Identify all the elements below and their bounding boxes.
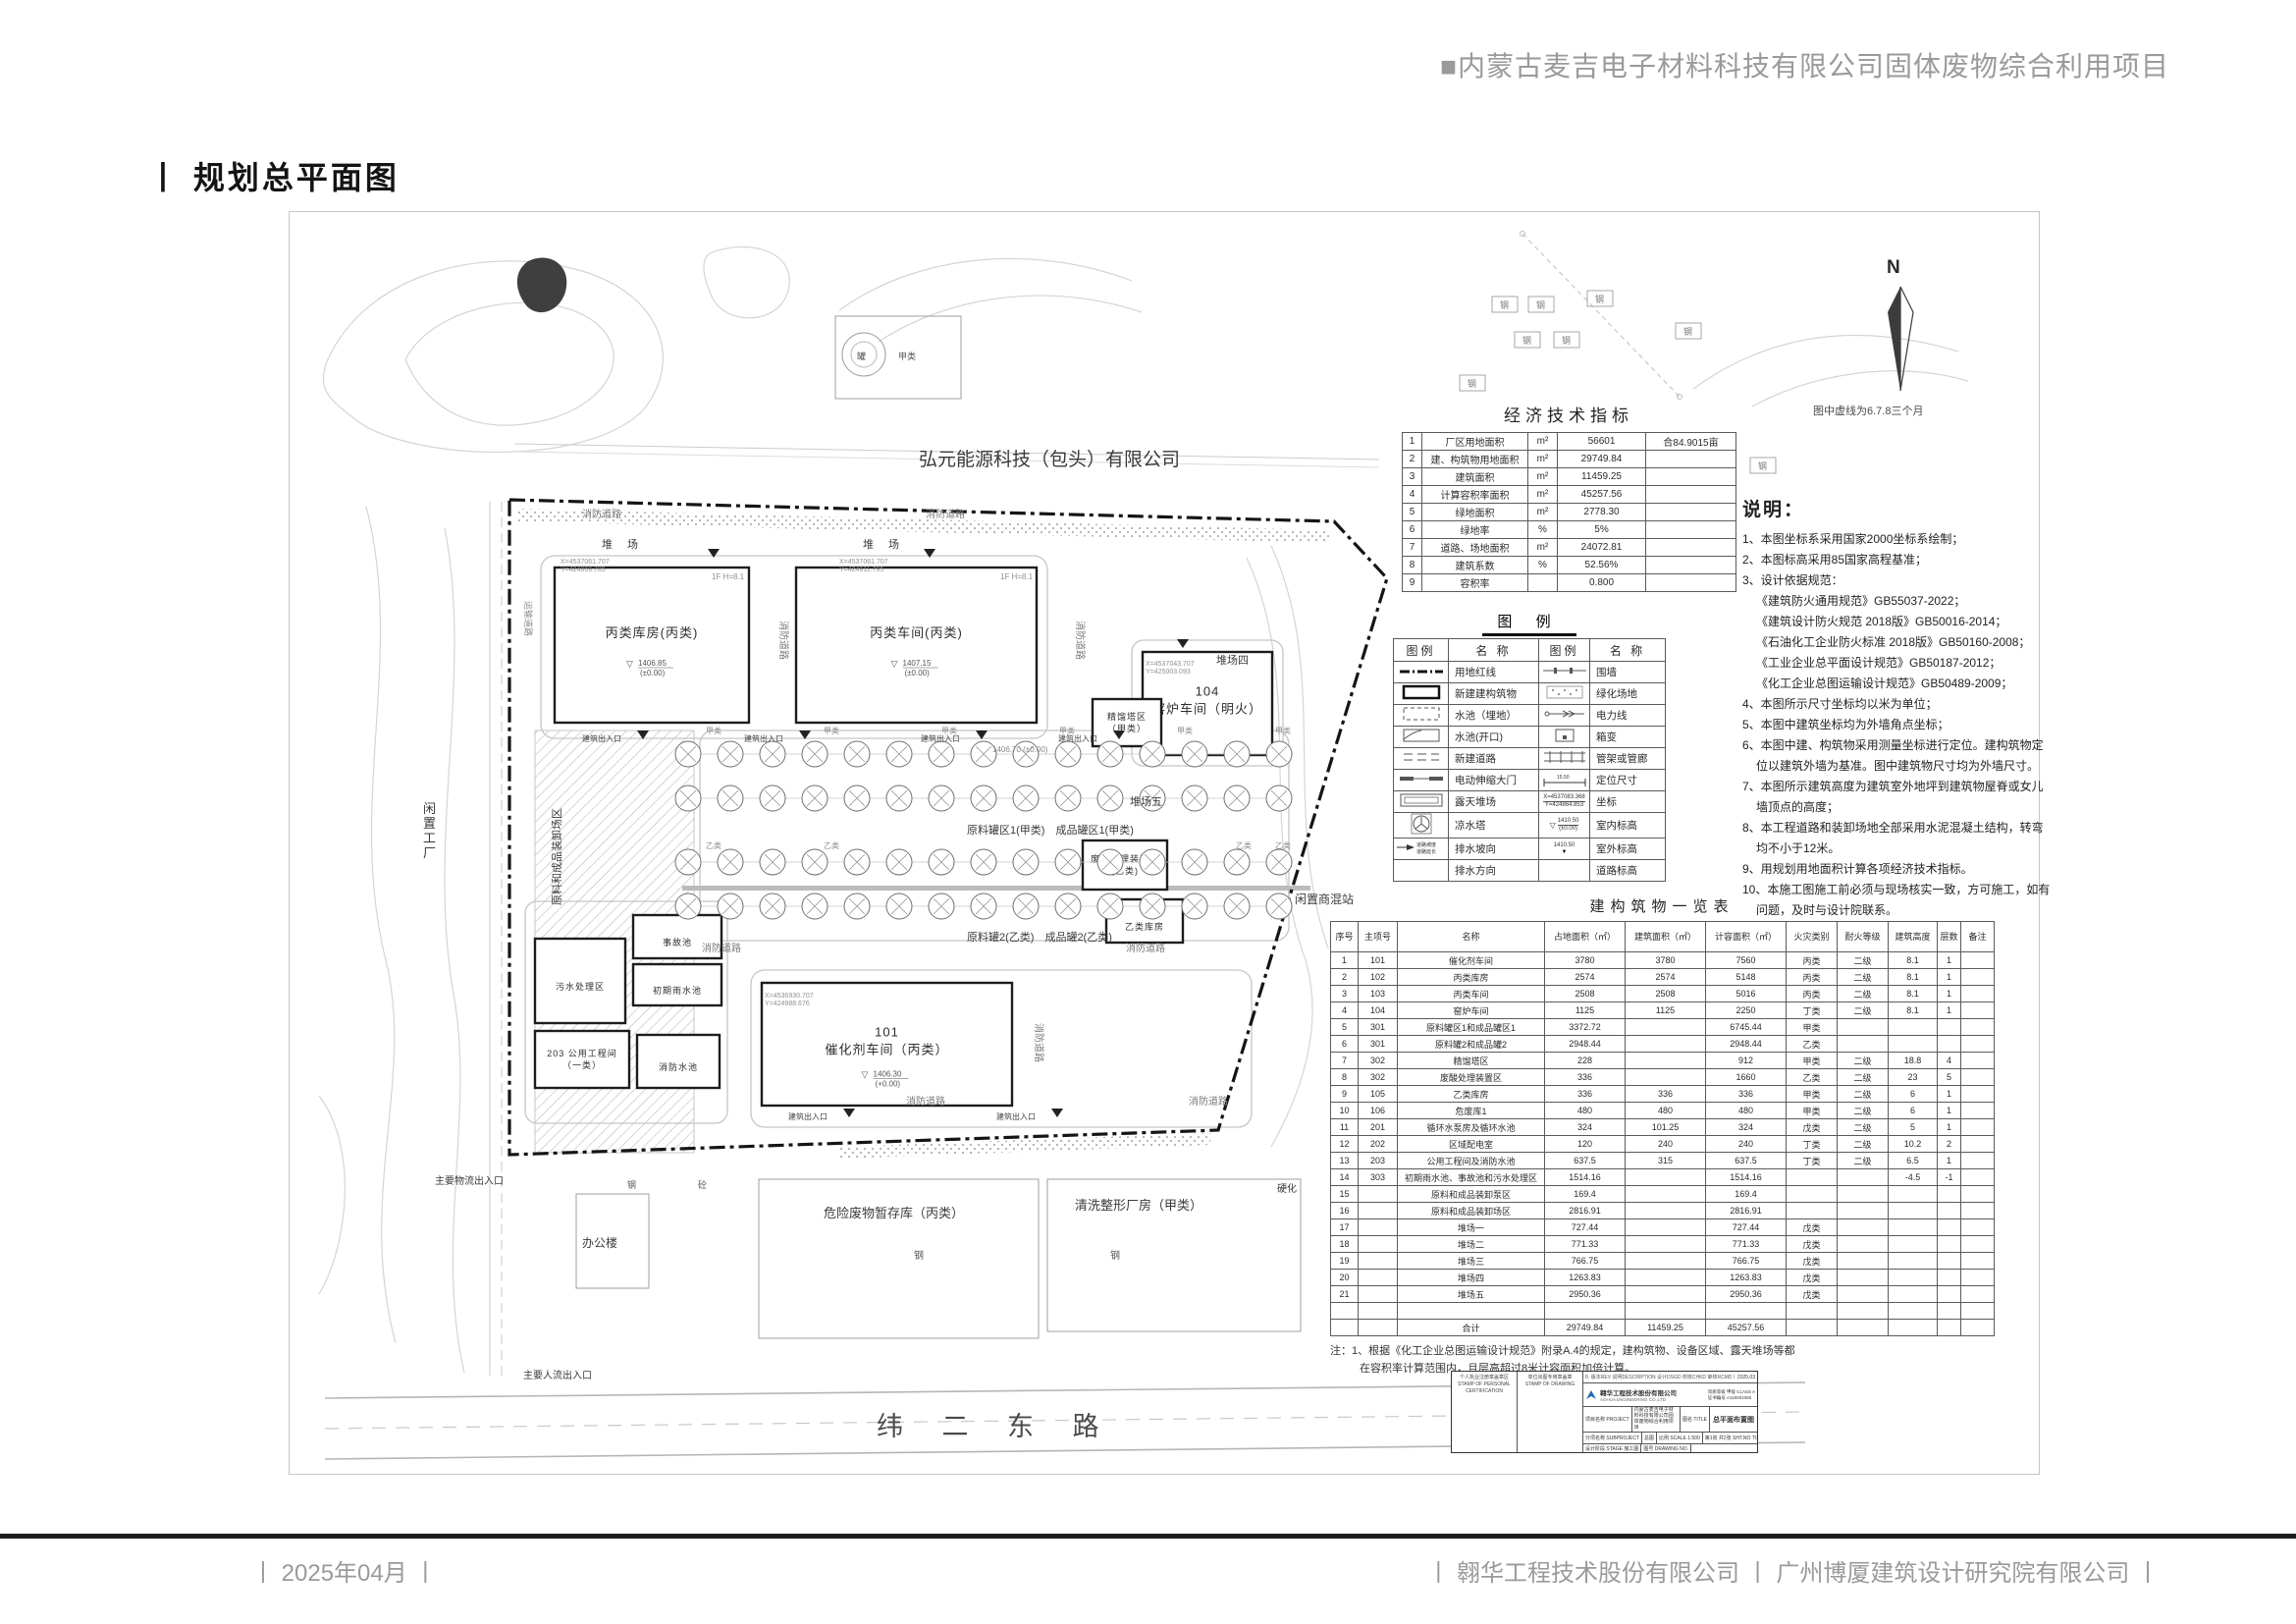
map-label: Y=425003.093 bbox=[1146, 669, 1191, 676]
economic-indicators-table: 1厂区用地面积m²56601合84.9015亩2建、构筑物用地面积m²29749… bbox=[1402, 432, 1736, 592]
table-cell: 乙类 bbox=[1787, 1036, 1838, 1053]
table-row: 15原料和成品装卸泵区169.4169.4 bbox=[1331, 1186, 1995, 1203]
map-label: 堆 场 bbox=[863, 537, 905, 551]
table-cell bbox=[1961, 1303, 1995, 1320]
table-cell bbox=[1528, 574, 1558, 592]
map-label: 消防道路 bbox=[926, 508, 965, 520]
table-cell bbox=[1938, 1320, 1961, 1336]
scale: 比例 SCALE 1:500 bbox=[1657, 1433, 1703, 1443]
table-cell: 丁类 bbox=[1787, 1153, 1838, 1169]
table-cell bbox=[1961, 1320, 1995, 1336]
table-cell: % bbox=[1528, 521, 1558, 539]
note-line: 《建筑设计防火规范 2018版》GB50016-2014； bbox=[1742, 612, 2037, 632]
note-line: 6、本图中建、构筑物采用测量坐标进行定位。建构筑物定 bbox=[1742, 735, 2037, 756]
table-cell: 堆场三 bbox=[1398, 1253, 1545, 1270]
legend-name: 定位尺寸 bbox=[1590, 770, 1666, 791]
table-cell bbox=[1889, 1320, 1938, 1336]
table-cell: 303 bbox=[1359, 1169, 1398, 1186]
table-cell bbox=[1646, 504, 1736, 521]
table-cell bbox=[1838, 1303, 1889, 1320]
table-cell bbox=[1961, 1270, 1995, 1286]
column-header: 名称 bbox=[1398, 922, 1545, 952]
table-cell: 8.1 bbox=[1889, 986, 1938, 1002]
table-cell bbox=[1359, 1270, 1398, 1286]
table-cell: 20 bbox=[1331, 1270, 1359, 1286]
table-cell bbox=[1938, 1303, 1961, 1320]
table-cell: 丙类库房 bbox=[1398, 969, 1545, 986]
north-caption: 图中虚线为6.7.8三个月 bbox=[1813, 403, 1923, 418]
tank-class-label: 甲类 bbox=[706, 726, 721, 735]
table-cell bbox=[1961, 1069, 1995, 1086]
greenery-strip-top bbox=[517, 509, 1330, 543]
titleblock-header-row: 版本REV 说明DESCRIPTION 设计DSGD 校核CHKD 审核RCMD… bbox=[1591, 1374, 1735, 1380]
table-cell: 2574 bbox=[1545, 969, 1626, 986]
titleblock: 个人执业注册章盖章区 STAMP OF PERSONAL CERTIFICATI… bbox=[1451, 1371, 1758, 1453]
table-cell bbox=[1646, 521, 1736, 539]
legend-name: 排水坡向 bbox=[1449, 839, 1539, 860]
entrance-label: 建筑出入口 bbox=[1058, 733, 1097, 743]
table-cell bbox=[1961, 1203, 1995, 1219]
elevation-datum: (±0.00) bbox=[905, 669, 931, 677]
table-cell: 2 bbox=[1403, 451, 1422, 468]
column-header: 耐火等级 bbox=[1838, 922, 1889, 952]
map-label: 砼 bbox=[698, 1179, 707, 1190]
table-cell bbox=[1359, 1253, 1398, 1270]
table-cell: 7560 bbox=[1706, 952, 1787, 969]
table-cell: 绿地面积 bbox=[1422, 504, 1528, 521]
table-row: 10106危废库1480480480甲类二级61 bbox=[1331, 1103, 1995, 1119]
building-label: 104 bbox=[1196, 684, 1220, 699]
table-cell bbox=[1961, 986, 1995, 1002]
map-label: 1F H=8.1 bbox=[712, 572, 745, 581]
table-cell: 戊类 bbox=[1787, 1236, 1838, 1253]
table-cell: 7 bbox=[1403, 539, 1422, 557]
table-cell: 8 bbox=[1403, 557, 1422, 574]
drawing-title-label: 图名 TITLE bbox=[1681, 1407, 1710, 1432]
table-cell: 二级 bbox=[1838, 1136, 1889, 1153]
table-cell: 废酸处理装置区 bbox=[1398, 1069, 1545, 1086]
revision-value: 0 bbox=[1585, 1375, 1588, 1380]
table-cell: 丁类 bbox=[1787, 1136, 1838, 1153]
steel-label: 钢 bbox=[1683, 326, 1692, 337]
table-cell bbox=[1961, 1136, 1995, 1153]
steel-label: 钢 bbox=[1595, 294, 1604, 304]
project-name: 内蒙古麦吉电子材料科技有限公司固体废物综合利用项目 bbox=[1632, 1407, 1681, 1432]
map-label: 消防道路 bbox=[1189, 1095, 1228, 1108]
table-cell bbox=[1838, 1203, 1889, 1219]
column-header: 计容面积（㎡） bbox=[1706, 922, 1787, 952]
table-cell bbox=[1838, 1219, 1889, 1236]
legend-symbol-outdoor: 1410.50▼ bbox=[1539, 839, 1590, 860]
company-logo-icon bbox=[1585, 1389, 1597, 1400]
map-label: 主要物流出入口 bbox=[435, 1174, 504, 1187]
map-label: 堆场四 bbox=[1216, 653, 1249, 667]
table-cell bbox=[1961, 1103, 1995, 1119]
entrance-label: 建筑出入口 bbox=[744, 733, 783, 743]
map-label: 罐 bbox=[857, 351, 866, 361]
table-cell: 3780 bbox=[1626, 952, 1706, 969]
table-cell: 初期雨水池、事故池和污水处理区 bbox=[1398, 1169, 1545, 1186]
note-line: 均不小于12米。 bbox=[1742, 839, 2037, 859]
table-cell: 302 bbox=[1359, 1069, 1398, 1086]
legend-row: 水池（埋地）电力线 bbox=[1394, 705, 1666, 727]
new-building bbox=[535, 1031, 629, 1088]
table-cell bbox=[1626, 1169, 1706, 1186]
table-cell: 堆场二 bbox=[1398, 1236, 1545, 1253]
table-cell: 2 bbox=[1938, 1136, 1961, 1153]
table-cell: 建筑面积 bbox=[1422, 468, 1528, 486]
entrance-label: 建筑出入口 bbox=[996, 1111, 1036, 1121]
table-cell: 4 bbox=[1938, 1053, 1961, 1069]
table-cell bbox=[1889, 1270, 1938, 1286]
table-row: 20堆场四1263.831263.83戊类 bbox=[1331, 1270, 1995, 1286]
table-cell: 建筑系数 bbox=[1422, 557, 1528, 574]
table-cell: 101.25 bbox=[1626, 1119, 1706, 1136]
table-cell: 危废库1 bbox=[1398, 1103, 1545, 1119]
table-cell bbox=[1961, 1086, 1995, 1103]
map-label: 主要人流出入口 bbox=[523, 1369, 592, 1381]
table-cell: 合84.9015亩 bbox=[1646, 433, 1736, 451]
table-cell: 203 bbox=[1359, 1153, 1398, 1169]
table-cell: 原料罐区1和成品罐区1 bbox=[1398, 1019, 1545, 1036]
table-cell bbox=[1838, 1253, 1889, 1270]
table-row: 1101催化剂车间378037807560丙类二级8.11 bbox=[1331, 952, 1995, 969]
note-line: 4、本图所示尺寸坐标均以米为单位； bbox=[1742, 694, 2037, 715]
table-cell: 堆场四 bbox=[1398, 1270, 1545, 1286]
table-cell: 戊类 bbox=[1787, 1270, 1838, 1286]
table-cell: 厂区用地面积 bbox=[1422, 433, 1528, 451]
table-cell bbox=[1961, 1019, 1995, 1036]
company-name: 翱华工程技术股份有限公司 AOHUA ENGINEERING CO.,LTD bbox=[1600, 1387, 1677, 1403]
map-label: Y=424988.676 bbox=[765, 1001, 810, 1007]
table-cell: 2250 bbox=[1706, 1002, 1787, 1019]
legend-row: 电动伸缩大门15.50定位尺寸 bbox=[1394, 770, 1666, 791]
svg-text:道路坡度: 道路坡度 bbox=[1416, 841, 1436, 848]
table-cell: 106 bbox=[1359, 1103, 1398, 1119]
table-cell: 1 bbox=[1938, 1086, 1961, 1103]
map-label: 原料罐2(乙类) 成品罐2(乙类) bbox=[967, 930, 1112, 944]
new-building bbox=[796, 568, 1037, 723]
footer-companies: 丨 翱华工程技术股份有限公司 丨 广州博厦建筑设计研究院有限公司 丨 bbox=[1426, 1553, 2160, 1588]
table-cell: 1 bbox=[1938, 969, 1961, 986]
building-label: （甲类） bbox=[1107, 723, 1147, 733]
table-cell: 甲类 bbox=[1787, 1103, 1838, 1119]
building-label: 初期雨水池 bbox=[653, 985, 702, 996]
table-cell: 324 bbox=[1545, 1119, 1626, 1136]
note-line: 1、本图坐标系采用国家2000坐标系绘制； bbox=[1742, 529, 2037, 550]
table-row: 4104窑炉车间112511252250丁类二级8.11 bbox=[1331, 1002, 1995, 1019]
table-cell bbox=[1838, 1186, 1889, 1203]
note-line: 《石油化工企业防火标准 2018版》GB50160-2008； bbox=[1742, 632, 2037, 653]
legend-name: 室内标高 bbox=[1590, 813, 1666, 839]
table-row: 8建筑系数%52.56% bbox=[1403, 557, 1736, 574]
table-cell: 2778.30 bbox=[1558, 504, 1646, 521]
table-cell: 二级 bbox=[1838, 969, 1889, 986]
table-cell: 17 bbox=[1331, 1219, 1359, 1236]
table-cell: 计算容积率面积 bbox=[1422, 486, 1528, 504]
table-cell: 戊类 bbox=[1787, 1119, 1838, 1136]
table-cell: 10 bbox=[1331, 1103, 1359, 1119]
table-cell bbox=[1889, 1253, 1938, 1270]
table-cell: 二级 bbox=[1838, 1103, 1889, 1119]
table-cell bbox=[1646, 557, 1736, 574]
table-cell: 480 bbox=[1545, 1103, 1626, 1119]
column-header: 占地面积（㎡） bbox=[1545, 922, 1626, 952]
table-cell: 二级 bbox=[1838, 1086, 1889, 1103]
note-line: 3、设计依据规范： bbox=[1742, 570, 2037, 591]
table-cell bbox=[1938, 1253, 1961, 1270]
table-row: 2建、构筑物用地面积m²29749.84 bbox=[1403, 451, 1736, 468]
legend-name: 凉水塔 bbox=[1449, 813, 1539, 839]
economic-indicators-title: 经济技术指标 bbox=[1402, 402, 1735, 426]
map-label: Y=424869.785 bbox=[561, 567, 606, 573]
table-cell: 10.2 bbox=[1889, 1136, 1938, 1153]
table-row: 4计算容积率面积m²45257.56 bbox=[1403, 486, 1736, 504]
table-cell bbox=[1626, 1036, 1706, 1053]
table-cell: 105 bbox=[1359, 1086, 1398, 1103]
table-cell: 原料和成品装卸场区 bbox=[1398, 1203, 1545, 1219]
table-cell: 1514.16 bbox=[1706, 1169, 1787, 1186]
table-cell: 堆场五 bbox=[1398, 1286, 1545, 1303]
table-cell: 2816.91 bbox=[1706, 1203, 1787, 1219]
table-cell: 5 bbox=[1331, 1019, 1359, 1036]
legend-symbol-pool_buried bbox=[1394, 705, 1449, 727]
table-cell bbox=[1787, 1303, 1838, 1320]
table-cell bbox=[1359, 1236, 1398, 1253]
legend-name: 新建道路 bbox=[1449, 748, 1539, 770]
drawing-title: 总平面布置图 bbox=[1710, 1407, 1757, 1432]
note-line: 9、用规划用地面积计算各项经济技术指标。 bbox=[1742, 859, 2037, 880]
table-cell bbox=[1626, 1286, 1706, 1303]
table-cell bbox=[1838, 1019, 1889, 1036]
table-cell: 8.1 bbox=[1889, 1002, 1938, 1019]
qualification: 资质等级 甲级 CLASS A 证书编号 A115001065 bbox=[1708, 1389, 1755, 1401]
table-cell: 8.1 bbox=[1889, 952, 1938, 969]
table-cell: 3780 bbox=[1545, 952, 1626, 969]
project-label: 项目名称 PROJECT bbox=[1583, 1407, 1632, 1432]
table-cell bbox=[1787, 1320, 1838, 1336]
table-cell: 1125 bbox=[1626, 1002, 1706, 1019]
legend-name: 用地红线 bbox=[1449, 662, 1539, 683]
table-cell bbox=[1961, 1186, 1995, 1203]
table-cell: 6 bbox=[1889, 1086, 1938, 1103]
legend-symbol-newbuild bbox=[1394, 683, 1449, 705]
map-label: 1F H=8.1 bbox=[1000, 572, 1034, 581]
table-row: 16原料和成品装卸场区2816.912816.91 bbox=[1331, 1203, 1995, 1219]
table-cell: 771.33 bbox=[1706, 1236, 1787, 1253]
legend-symbol-drain bbox=[1394, 860, 1449, 882]
table-cell bbox=[1961, 1253, 1995, 1270]
table-cell: 23 bbox=[1889, 1069, 1938, 1086]
personal-stamp-label-en: STAMP OF PERSONAL CERTIFICATION bbox=[1452, 1381, 1517, 1395]
table-cell: 301 bbox=[1359, 1019, 1398, 1036]
table-cell bbox=[1938, 1219, 1961, 1236]
titleblock-main: 0 版本REV 说明DESCRIPTION 设计DSGD 校核CHKD 审核RC… bbox=[1583, 1372, 1757, 1452]
table-cell: 336 bbox=[1626, 1086, 1706, 1103]
table-cell: 3 bbox=[1403, 468, 1422, 486]
table-cell: 5016 bbox=[1706, 986, 1787, 1002]
elevation-mark: ▽ bbox=[891, 659, 898, 669]
building-label: 丙类车间(丙类) bbox=[870, 625, 963, 640]
legend-symbol-boxtrans bbox=[1539, 727, 1590, 748]
pipe-rack bbox=[682, 886, 1310, 891]
table-row: 12202区域配电室120240240丁类二级10.22 bbox=[1331, 1136, 1995, 1153]
table-cell: 二级 bbox=[1838, 1153, 1889, 1169]
table-cell: 24072.81 bbox=[1558, 539, 1646, 557]
legend-name: 围墙 bbox=[1590, 662, 1666, 683]
table-row: 6301原料罐2和成品罐22948.442948.44乙类 bbox=[1331, 1036, 1995, 1053]
table-cell: 堆场一 bbox=[1398, 1219, 1545, 1236]
legend-name: 露天堆场 bbox=[1449, 791, 1539, 813]
entrance-marker bbox=[1051, 1109, 1063, 1117]
table-cell bbox=[1359, 1203, 1398, 1219]
table-cell: 乙类 bbox=[1787, 1069, 1838, 1086]
building-label: 101 bbox=[875, 1025, 899, 1040]
legend-name: 室外标高 bbox=[1590, 839, 1666, 860]
legend-symbol-power bbox=[1539, 705, 1590, 727]
table-cell: 1 bbox=[1938, 1103, 1961, 1119]
table-cell bbox=[1961, 1169, 1995, 1186]
steel-label: 钢 bbox=[1562, 335, 1571, 346]
building-label: 消防水池 bbox=[659, 1061, 698, 1072]
table-row: 5301原料罐区1和成品罐区13372.726745.44甲类 bbox=[1331, 1019, 1995, 1036]
date-value: 2025.03 bbox=[1737, 1375, 1755, 1380]
map-label: 消防道路 bbox=[1126, 942, 1165, 954]
table-cell: 336 bbox=[1545, 1069, 1626, 1086]
buildings-list-title: 建构筑物一览表 bbox=[1330, 895, 1994, 916]
column-header: 建筑高度 bbox=[1889, 922, 1938, 952]
legend-symbol-gate bbox=[1394, 770, 1449, 791]
map-label: 堆场五 bbox=[1130, 794, 1162, 808]
subproject-value: 总图 bbox=[1642, 1433, 1657, 1443]
table-row: 合计29749.8411459.2545257.56 bbox=[1331, 1320, 1995, 1336]
buildings-list-table: 序号主项号名称占地面积（㎡）建筑面积（㎡）计容面积（㎡）火灾类别耐火等级建筑高度… bbox=[1330, 921, 1995, 1336]
table-cell: 201 bbox=[1359, 1119, 1398, 1136]
table-cell: 4 bbox=[1403, 486, 1422, 504]
column-header: 名 称 bbox=[1449, 639, 1539, 662]
note-line: 《建筑防火通用规范》GB55037-2022； bbox=[1742, 591, 2037, 612]
tank-class-label: 乙类 bbox=[1236, 840, 1252, 850]
table-cell bbox=[1889, 1019, 1938, 1036]
table-cell bbox=[1331, 1303, 1359, 1320]
table-cell: 21 bbox=[1331, 1286, 1359, 1303]
legend-row: 新建道路管架或管廊 bbox=[1394, 748, 1666, 770]
column-header: 建筑面积（㎡） bbox=[1626, 922, 1706, 952]
table-cell: 202 bbox=[1359, 1136, 1398, 1153]
table-cell: 120 bbox=[1545, 1136, 1626, 1153]
table-cell: 6745.44 bbox=[1706, 1019, 1787, 1036]
table-cell: % bbox=[1528, 557, 1558, 574]
table-cell: 5148 bbox=[1706, 969, 1787, 986]
table-cell: 二级 bbox=[1838, 1119, 1889, 1136]
building-label: 203 公用工程间 bbox=[547, 1048, 617, 1058]
legend-name: 管架或管廊 bbox=[1590, 748, 1666, 770]
table-cell: -1 bbox=[1938, 1169, 1961, 1186]
map-label: 消防道路 bbox=[1033, 1023, 1045, 1062]
table-cell: 合计 bbox=[1398, 1320, 1545, 1336]
table-cell: 12 bbox=[1331, 1136, 1359, 1153]
legend-row: 凉水塔▽1410.50(±0.00)室内标高 bbox=[1394, 813, 1666, 839]
table-cell bbox=[1626, 1219, 1706, 1236]
table-cell bbox=[1889, 1219, 1938, 1236]
map-label: Y=424911.795 bbox=[839, 567, 883, 573]
table-row: 9105乙类库房336336336甲类二级61 bbox=[1331, 1086, 1995, 1103]
table-cell: 2950.36 bbox=[1545, 1286, 1626, 1303]
table-cell: 0.800 bbox=[1558, 574, 1646, 592]
existing-building bbox=[759, 1179, 1039, 1338]
legend-name: 绿化场地 bbox=[1590, 683, 1666, 705]
steel-label: 钢 bbox=[1758, 460, 1767, 471]
legend-symbol-dim: 15.50 bbox=[1539, 770, 1590, 791]
legend-symbol-yard bbox=[1394, 791, 1449, 813]
table-cell bbox=[1961, 969, 1995, 986]
stage: 设计阶段 STAGE 施工图 bbox=[1583, 1444, 1641, 1452]
table-cell: 2508 bbox=[1626, 986, 1706, 1002]
table-cell: 原料和成品装卸泵区 bbox=[1398, 1186, 1545, 1203]
table-cell bbox=[1889, 1203, 1938, 1219]
table-cell bbox=[1706, 1303, 1787, 1320]
table-cell: 301 bbox=[1359, 1036, 1398, 1053]
entrance-marker bbox=[1177, 639, 1189, 648]
buildings-list-panel: 建构筑物一览表 序号主项号名称占地面积（㎡）建筑面积（㎡）计容面积（㎡）火灾类别… bbox=[1330, 895, 1994, 1376]
table-cell: 8 bbox=[1331, 1069, 1359, 1086]
table-cell: 169.4 bbox=[1545, 1186, 1626, 1203]
table-cell: 催化剂车间 bbox=[1398, 952, 1545, 969]
drawing-stamp-box: 单位出图专用章盖章 STAMP OF DRAWING bbox=[1518, 1372, 1583, 1452]
elevation-datum: (+0.00) bbox=[876, 1080, 901, 1089]
elevation-value: 1406.85 bbox=[638, 659, 667, 668]
notes-title: 说明： bbox=[1742, 495, 2037, 521]
table-cell bbox=[1545, 1303, 1626, 1320]
column-header: 备注 bbox=[1961, 922, 1995, 952]
legend-symbol-fence bbox=[1539, 662, 1590, 683]
legend-symbol-redline bbox=[1394, 662, 1449, 683]
new-building bbox=[633, 964, 721, 1005]
table-cell: 169.4 bbox=[1706, 1186, 1787, 1203]
project-header: ■内蒙古麦吉电子材料科技有限公司固体废物综合利用项目 bbox=[1440, 45, 2169, 84]
table-cell bbox=[1961, 1119, 1995, 1136]
table-row: 11201循环水泵房及循环水池324101.25324戊类二级51 bbox=[1331, 1119, 1995, 1136]
column-header: 图例 bbox=[1394, 639, 1449, 662]
map-label: 原料和成品装卸场区 bbox=[550, 808, 563, 905]
map-label: 堆 场 bbox=[602, 537, 644, 551]
table-cell: 公用工程间及消防水池 bbox=[1398, 1153, 1545, 1169]
map-label: X=4536930.707 bbox=[765, 993, 814, 1000]
map-label: 运输道路 bbox=[523, 601, 534, 636]
table-cell: 2 bbox=[1331, 969, 1359, 986]
table-cell bbox=[1838, 1286, 1889, 1303]
table-cell: 240 bbox=[1706, 1136, 1787, 1153]
map-label: 钢 bbox=[1110, 1249, 1120, 1262]
legend-name: 水池(开口) bbox=[1449, 727, 1539, 748]
table-cell: 102 bbox=[1359, 969, 1398, 986]
map-label: 消防道路 bbox=[777, 621, 790, 660]
table-cell bbox=[1787, 1203, 1838, 1219]
table-cell: 15 bbox=[1331, 1186, 1359, 1203]
table-cell: 丙类 bbox=[1787, 986, 1838, 1002]
footer-date: 丨 2025年04月 丨 bbox=[251, 1553, 437, 1588]
table-cell: 乙类库房 bbox=[1398, 1086, 1545, 1103]
building-label: 催化剂车间（丙类） bbox=[825, 1043, 948, 1057]
note-line: 7、本图所示建筑高度为建筑室外地坪到建筑物屋脊或女儿 bbox=[1742, 777, 2037, 797]
legend-name: 新建建构筑物 bbox=[1449, 683, 1539, 705]
table-cell: 6 bbox=[1331, 1036, 1359, 1053]
building-label: 乙类库房 bbox=[1125, 921, 1164, 932]
table-cell bbox=[1359, 1303, 1398, 1320]
table-cell bbox=[1359, 1186, 1398, 1203]
table-cell: 13 bbox=[1331, 1153, 1359, 1169]
legend-row: 排水方向道路标高 bbox=[1394, 860, 1666, 882]
